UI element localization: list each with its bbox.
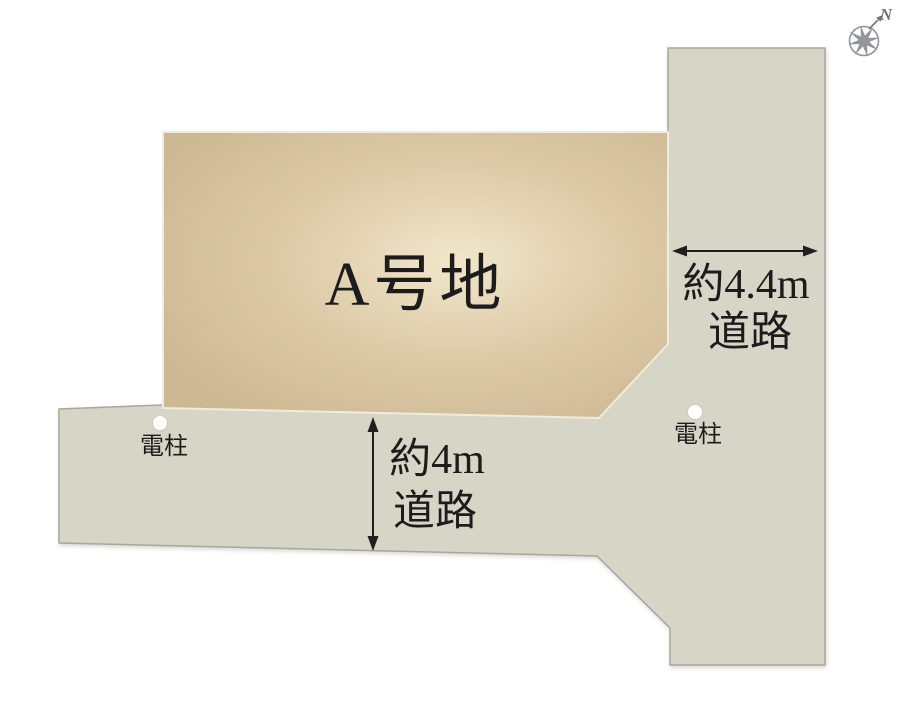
right-road-width-label: 約4.4m [682, 262, 810, 308]
utility-pole-right-label: 電柱 [674, 421, 722, 448]
site-plan-canvas: A号地 約4.4m 道路 約4m 道路 電柱 電柱 [0, 0, 900, 713]
site-plan: A号地 約4.4m 道路 約4m 道路 電柱 電柱 [0, 0, 900, 713]
utility-pole-left-label: 電柱 [140, 433, 188, 460]
utility-pole-right-marker [688, 405, 703, 420]
lot-label: A号地 [325, 251, 506, 319]
north-arrow-icon [869, 20, 878, 29]
compass-star-icon [840, 17, 887, 64]
right-road-type-label: 道路 [708, 310, 792, 356]
compass-rose: N [840, 5, 892, 65]
bottom-road-width-label: 約4m [389, 437, 485, 483]
utility-pole-left-marker [153, 416, 168, 431]
bottom-road-type-label: 道路 [393, 489, 477, 535]
north-label: N [879, 5, 893, 24]
